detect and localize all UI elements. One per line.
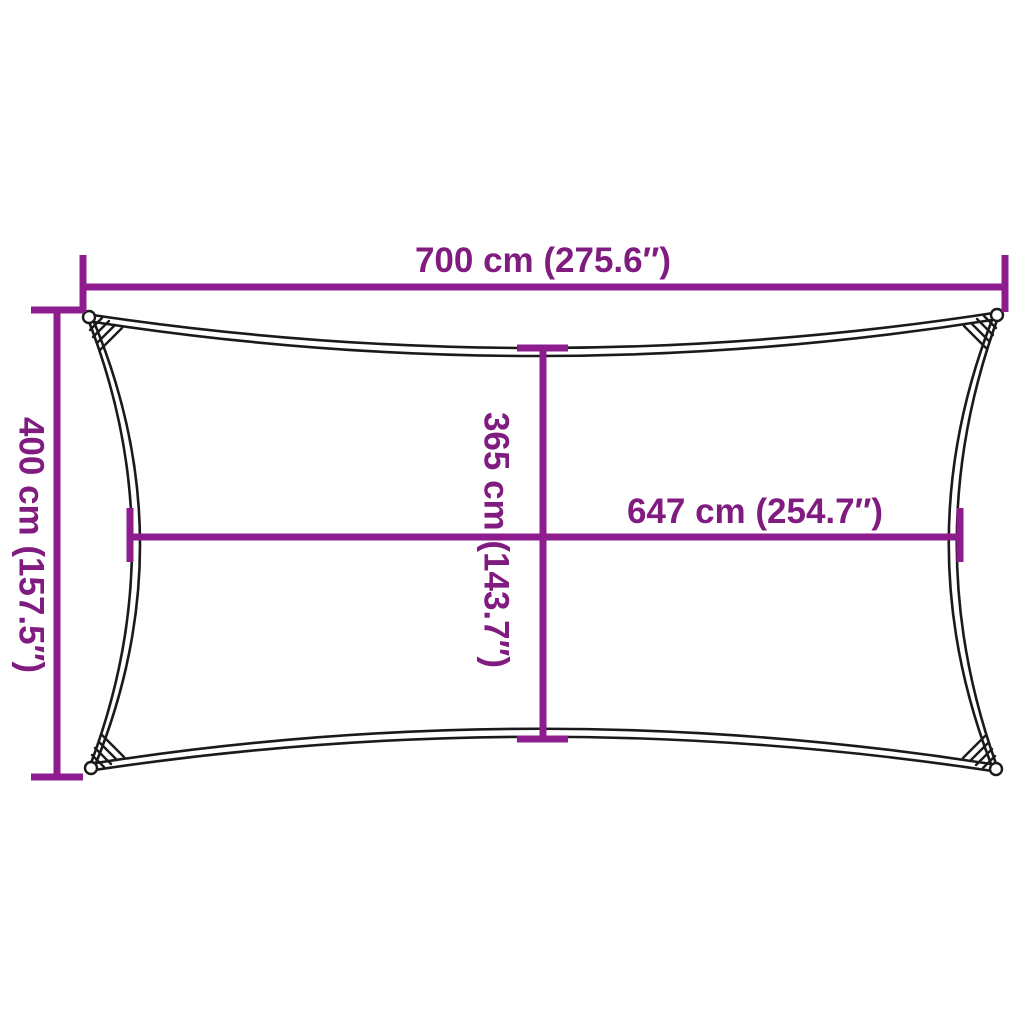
corner-ring-icon [83,311,95,323]
label-inner-height: 365 cm (143.7″) [479,412,514,668]
dimension-diagram: 700 cm (275.6″) 400 cm (157.5″) 365 cm (… [0,0,1024,1024]
corner-ring-icon [85,762,97,774]
label-inner-width: 647 cm (254.7″) [627,494,883,529]
label-width-top: 700 cm (275.6″) [415,243,671,278]
dimension-line-inner-vertical [517,348,568,739]
corner-ring-icon [990,763,1002,775]
corner-ring-icon [991,309,1003,321]
label-height-left: 400 cm (157.5″) [14,417,49,673]
